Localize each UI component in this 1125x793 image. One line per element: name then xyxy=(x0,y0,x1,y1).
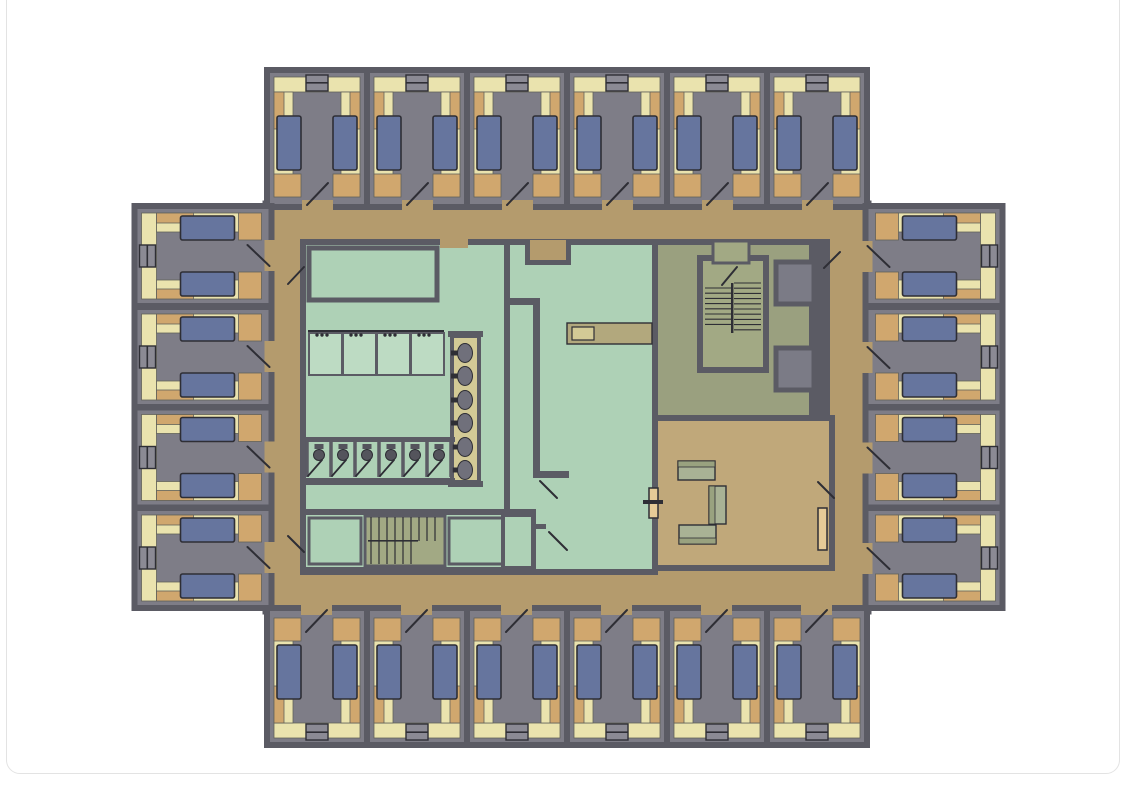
sink-basin-icon xyxy=(458,367,473,386)
desk-corner-right xyxy=(674,618,701,641)
hall-closet-handle xyxy=(533,524,546,529)
window-box-line xyxy=(147,447,149,469)
door-gap xyxy=(402,200,433,212)
north-wing-room-5 xyxy=(667,67,767,212)
east-wing-room-1 xyxy=(861,206,1006,306)
bed-left xyxy=(477,116,501,170)
window-box-line xyxy=(706,731,728,733)
bed-left xyxy=(181,474,235,498)
desk-corner-right xyxy=(239,515,262,542)
south-stair-landing-line xyxy=(368,540,418,542)
window-tick xyxy=(604,742,630,748)
window-tick xyxy=(304,742,330,748)
desk-corner-left xyxy=(876,515,899,542)
window-tick xyxy=(504,67,530,73)
east-wing-room-3 xyxy=(861,408,1006,508)
door-gap xyxy=(501,603,532,615)
core-layer xyxy=(267,205,867,610)
shower-faucet-3-dot xyxy=(383,333,386,336)
window-box-line xyxy=(989,447,991,469)
toilet-tank-icon xyxy=(387,444,396,449)
bed-left xyxy=(181,373,235,397)
window-tick xyxy=(504,742,530,748)
sink-faucet-icon xyxy=(451,421,458,426)
desk-corner-left xyxy=(633,618,660,641)
window-box-line xyxy=(306,731,328,733)
screenshot-stage xyxy=(0,0,1125,793)
bed-left xyxy=(433,645,457,699)
bed-left xyxy=(903,317,957,341)
window-box-line xyxy=(989,346,991,368)
desk-corner-left xyxy=(239,272,262,299)
shower-faucet-4-dot xyxy=(417,333,420,336)
toilet-tank-icon xyxy=(339,444,348,449)
sofa-north-back xyxy=(678,461,715,467)
desk-corner-right xyxy=(876,474,899,501)
bed-left xyxy=(903,418,957,442)
door-gap xyxy=(701,603,732,615)
bed-right xyxy=(903,272,957,296)
bed-right xyxy=(181,216,235,240)
shower-stall-2 xyxy=(343,333,376,375)
bed-right xyxy=(333,116,357,170)
desk-corner-left xyxy=(876,314,899,341)
desk-corner-left xyxy=(774,174,801,197)
south-wing-room-4 xyxy=(567,603,667,748)
window-tick xyxy=(404,67,430,73)
desk-corner-left xyxy=(239,574,262,601)
toilet-bowl-icon xyxy=(362,450,373,461)
window-tick xyxy=(604,67,630,73)
hall-lounge-door-bar xyxy=(643,500,663,504)
bed-right xyxy=(677,645,701,699)
east-wing-room-4 xyxy=(861,508,1006,608)
east-wing-room-2 xyxy=(861,307,1006,407)
desk-corner-left xyxy=(474,174,501,197)
bed-right xyxy=(633,116,657,170)
desk-corner-left xyxy=(876,213,899,240)
window-tick xyxy=(804,742,830,748)
desk-corner-left xyxy=(239,474,262,501)
shower-faucet-1-dot xyxy=(325,333,328,336)
window-tick xyxy=(1000,243,1006,269)
desk-corner-left xyxy=(674,174,701,197)
shower-stall-1 xyxy=(309,333,342,375)
shower-faucet-1 xyxy=(315,333,328,336)
sink-faucet-icon xyxy=(451,351,458,356)
desk-corner-right xyxy=(374,618,401,641)
shower-faucet-2 xyxy=(349,333,362,336)
bed-right xyxy=(477,645,501,699)
desk-corner-left xyxy=(239,373,262,400)
bed-right xyxy=(903,373,957,397)
south-wing-room-5 xyxy=(667,603,767,748)
desk-corner-right xyxy=(774,618,801,641)
toilet-bowl-icon xyxy=(338,450,349,461)
desk-corner-right xyxy=(876,373,899,400)
desk-corner-right xyxy=(876,272,899,299)
door-gap xyxy=(265,240,277,271)
desk-corner-right xyxy=(274,618,301,641)
door-gap xyxy=(602,200,633,212)
window-tick xyxy=(1000,344,1006,370)
desk-corner-left xyxy=(333,618,360,641)
north-wing-room-2 xyxy=(367,67,467,212)
bed-left xyxy=(903,518,957,542)
window-box-line xyxy=(147,547,149,569)
window-box-line xyxy=(406,82,428,84)
sink-basin-icon xyxy=(458,391,473,410)
bathroom-south-wall xyxy=(300,478,455,485)
door-gap xyxy=(302,200,333,212)
reception-box xyxy=(572,327,594,340)
north-stair-center-line xyxy=(731,283,733,333)
north-wing-room-6 xyxy=(767,67,867,212)
bed-right xyxy=(833,116,857,170)
laundry-room xyxy=(309,248,437,300)
window-box-line xyxy=(606,82,628,84)
shower-stall-4 xyxy=(411,333,444,375)
sink-counter-cap-top xyxy=(448,331,483,337)
bed-left xyxy=(633,645,657,699)
bed-right xyxy=(181,418,235,442)
sofa-south-back xyxy=(679,538,716,544)
desk-corner-left xyxy=(274,174,301,197)
shower-faucet-3-dot xyxy=(388,333,391,336)
shower-faucet-4-dot xyxy=(422,333,425,336)
hall-notch-erase xyxy=(527,240,569,262)
bed-left xyxy=(833,645,857,699)
window-box-line xyxy=(989,547,991,569)
desk-corner-right xyxy=(474,618,501,641)
bed-right xyxy=(733,116,757,170)
desk-corner-left xyxy=(574,174,601,197)
west-wing-room-4 xyxy=(132,508,277,608)
desk-corner-right xyxy=(733,174,760,197)
hall-partition-bottom-stub xyxy=(533,471,569,478)
toilet-tank-icon xyxy=(411,444,420,449)
door-gap xyxy=(301,603,332,615)
toilet-bowl-icon xyxy=(410,450,421,461)
window-tick xyxy=(1000,445,1006,471)
toilet-bowl-icon xyxy=(434,450,445,461)
bed-left xyxy=(533,645,557,699)
window-tick xyxy=(704,67,730,73)
bed-left xyxy=(733,645,757,699)
shower-faucet-2-dot xyxy=(359,333,362,336)
bed-right xyxy=(181,518,235,542)
elevator-2 xyxy=(776,348,814,390)
window-box-line xyxy=(706,82,728,84)
desk-corner-left xyxy=(733,618,760,641)
window-tick xyxy=(132,445,138,471)
west-wing-room-1 xyxy=(132,206,277,306)
bed-right xyxy=(181,317,235,341)
sink-basin-icon xyxy=(458,438,473,457)
desk-corner-right xyxy=(833,174,860,197)
lounge xyxy=(655,418,832,568)
bed-left xyxy=(777,116,801,170)
shower-faucet-1-dot xyxy=(315,333,318,336)
toilet-tank-icon xyxy=(315,444,324,449)
hall-notch-bottom-wall xyxy=(525,260,571,265)
toilet-tank-icon xyxy=(363,444,372,449)
door-gap xyxy=(401,603,432,615)
bed-right xyxy=(903,574,957,598)
shower-faucet-3 xyxy=(383,333,396,336)
window-box-line xyxy=(606,731,628,733)
door-gap xyxy=(861,443,873,474)
south-wing-room-2 xyxy=(367,603,467,748)
window-tick xyxy=(404,742,430,748)
window-tick xyxy=(704,742,730,748)
window-box-line xyxy=(506,82,528,84)
window-tick xyxy=(132,344,138,370)
desk-corner-left xyxy=(533,618,560,641)
sink-basin-icon xyxy=(458,414,473,433)
elevator-1 xyxy=(776,262,814,304)
door-gap xyxy=(802,200,833,212)
south-wing-room-1 xyxy=(267,603,367,748)
door-gap xyxy=(265,442,277,473)
window-box-line xyxy=(306,82,328,84)
south-wing-room-6 xyxy=(767,603,867,748)
desk-corner-left xyxy=(876,415,899,442)
shower-faucet-2-dot xyxy=(354,333,357,336)
north-wing-room-3 xyxy=(467,67,567,212)
bed-left xyxy=(577,116,601,170)
hall-partition xyxy=(533,298,540,478)
bed-left xyxy=(333,645,357,699)
toilet-bowl-icon xyxy=(314,450,325,461)
window-tick xyxy=(804,67,830,73)
window-box-line xyxy=(406,731,428,733)
desk-corner-right xyxy=(239,213,262,240)
bed-right xyxy=(577,645,601,699)
bed-left xyxy=(377,116,401,170)
window-box-line xyxy=(806,82,828,84)
bed-right xyxy=(777,645,801,699)
west-wing-room-3 xyxy=(132,408,277,508)
shower-faucet-2-dot xyxy=(349,333,352,336)
bed-right xyxy=(377,645,401,699)
desk-corner-right xyxy=(633,174,660,197)
bed-left xyxy=(677,116,701,170)
sink-faucet-icon xyxy=(451,374,458,379)
toilet-bowl-icon xyxy=(386,450,397,461)
desk-corner-right xyxy=(239,415,262,442)
window-tick xyxy=(304,67,330,73)
door-gap xyxy=(861,241,873,272)
shower-faucet-4-dot xyxy=(427,333,430,336)
window-tick xyxy=(1000,545,1006,571)
desk-corner-right xyxy=(239,314,262,341)
shower-faucet-4 xyxy=(417,333,430,336)
lounge-door xyxy=(818,508,827,550)
door-gap xyxy=(801,603,832,615)
desk-corner-right xyxy=(876,574,899,601)
window-box-line xyxy=(506,731,528,733)
bed-left xyxy=(277,116,301,170)
desk-corner-left xyxy=(374,174,401,197)
floor-plan xyxy=(0,0,1125,793)
desk-corner-right xyxy=(433,174,460,197)
bed-right xyxy=(433,116,457,170)
sofa-center-back xyxy=(709,486,715,524)
sink-basin-icon xyxy=(458,461,473,480)
window-box-line xyxy=(147,245,149,267)
north-wing-room-4 xyxy=(567,67,667,212)
north-wing-room-1 xyxy=(267,67,367,212)
shower-stall-3 xyxy=(377,333,410,375)
door-gap xyxy=(265,341,277,372)
window-tick xyxy=(132,545,138,571)
window-box-line xyxy=(989,245,991,267)
door-gap xyxy=(702,200,733,212)
bed-left xyxy=(903,216,957,240)
desk-corner-right xyxy=(333,174,360,197)
desk-corner-left xyxy=(833,618,860,641)
door-gap xyxy=(861,543,873,574)
door-gap xyxy=(265,542,277,573)
window-tick xyxy=(132,243,138,269)
bed-left xyxy=(181,574,235,598)
north-stair-vestibule xyxy=(713,241,749,263)
window-box-line xyxy=(806,731,828,733)
hall-closet xyxy=(503,515,533,568)
toilet-tank-icon xyxy=(435,444,444,449)
corridor-door-gap-north xyxy=(440,238,468,248)
door-gap xyxy=(861,342,873,373)
sink-basin-icon xyxy=(458,344,473,363)
bed-right xyxy=(903,474,957,498)
desk-corner-left xyxy=(433,618,460,641)
sink-faucet-icon xyxy=(451,398,458,403)
desk-corner-right xyxy=(533,174,560,197)
bed-left xyxy=(181,272,235,296)
shower-faucet-1-dot xyxy=(320,333,323,336)
south-wing-room-3 xyxy=(467,603,567,748)
bed-right xyxy=(277,645,301,699)
door-gap xyxy=(502,200,533,212)
window-box-line xyxy=(147,346,149,368)
desk-corner-right xyxy=(574,618,601,641)
west-wing-room-2 xyxy=(132,307,277,407)
bed-right xyxy=(533,116,557,170)
shower-faucet-3-dot xyxy=(393,333,396,336)
door-gap xyxy=(601,603,632,615)
storage-room-west xyxy=(309,518,361,564)
